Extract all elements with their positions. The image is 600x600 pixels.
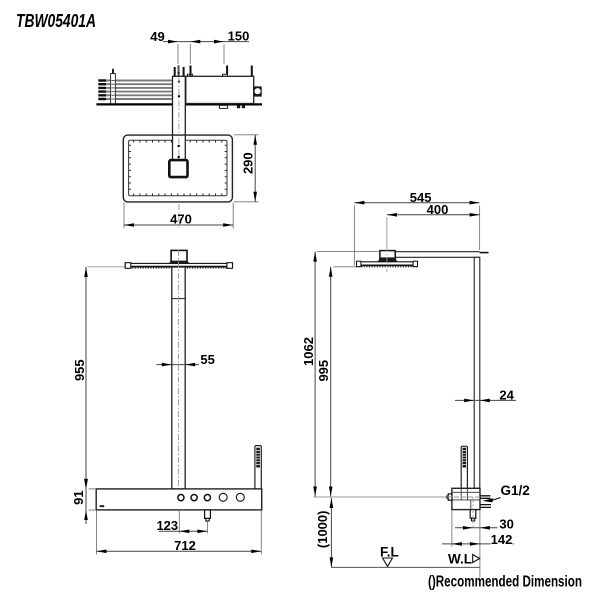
svg-text:955: 955 (72, 359, 87, 381)
svg-text:24: 24 (499, 388, 514, 403)
svg-text:G1/2: G1/2 (501, 483, 530, 498)
svg-text:150: 150 (228, 29, 250, 44)
svg-text:470: 470 (170, 211, 192, 226)
svg-text:1062: 1062 (301, 337, 316, 366)
svg-text:142: 142 (491, 532, 513, 547)
svg-text:995: 995 (316, 360, 331, 382)
svg-text:TBW05401A: TBW05401A (16, 11, 96, 31)
svg-text:F.L: F.L (380, 545, 399, 560)
svg-text:()Recommended Dimension: ()Recommended Dimension (428, 573, 582, 590)
svg-text:91: 91 (71, 490, 86, 504)
svg-text:400: 400 (427, 202, 449, 217)
svg-text:712: 712 (174, 538, 196, 553)
svg-text:55: 55 (200, 352, 214, 367)
svg-text:W.L: W.L (448, 552, 472, 567)
svg-text:49: 49 (150, 29, 164, 44)
svg-text:290: 290 (241, 152, 256, 174)
svg-text:30: 30 (499, 517, 513, 532)
svg-text:(1000): (1000) (315, 511, 330, 549)
svg-text:123: 123 (156, 518, 178, 533)
